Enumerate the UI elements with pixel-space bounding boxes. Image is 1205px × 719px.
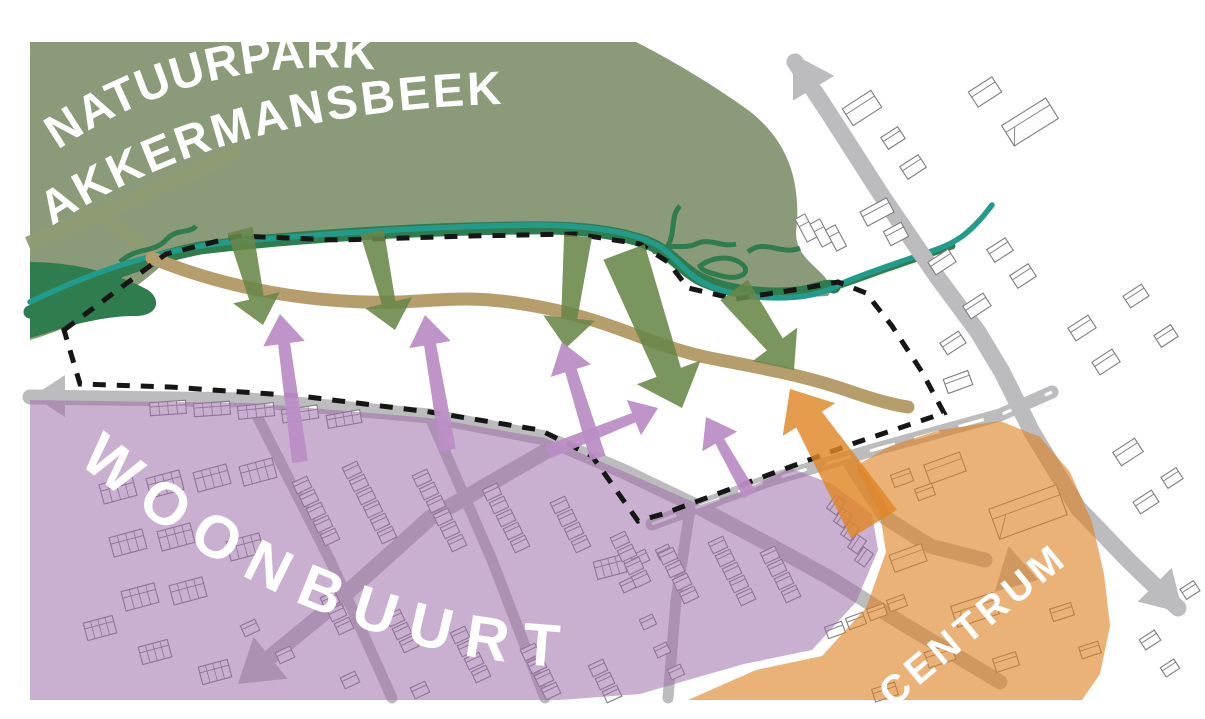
urban-planning-map: NATUURPARK AKKERMANSBEEK WOONBUURT CENTR… [0,0,1205,719]
planning-diagram-page: NATUURPARK AKKERMANSBEEK WOONBUURT CENTR… [0,0,1205,719]
